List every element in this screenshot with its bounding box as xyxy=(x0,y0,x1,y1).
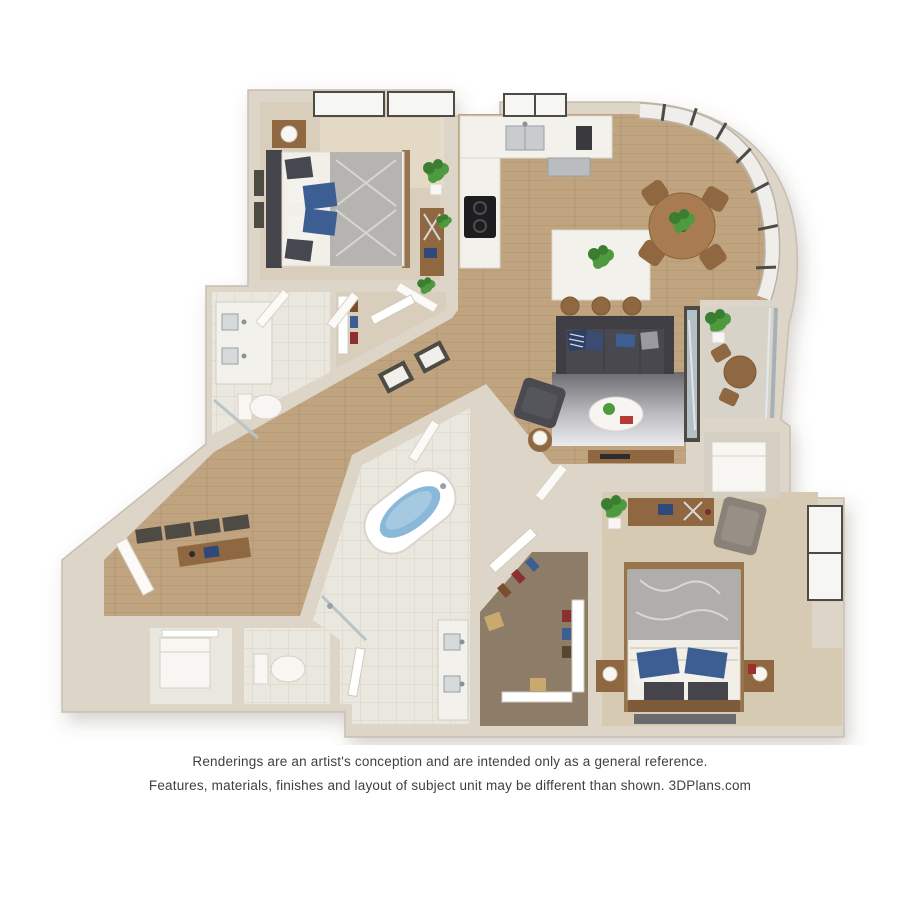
bedroom1-window-2 xyxy=(388,92,454,116)
shower-head xyxy=(327,603,333,609)
toilet-bowl xyxy=(271,656,305,682)
tablet xyxy=(424,248,437,258)
pillow-blue xyxy=(303,208,338,236)
wire-shelving xyxy=(502,692,572,702)
washer-dryer xyxy=(160,638,210,688)
bar-stool xyxy=(623,297,641,315)
clothes xyxy=(562,610,571,622)
runner-rug xyxy=(634,714,736,724)
bedroom2-window xyxy=(808,506,842,600)
lamp xyxy=(281,126,297,142)
duvet xyxy=(628,570,740,640)
planter-pot xyxy=(712,332,725,343)
kitchen-island xyxy=(552,230,650,315)
dishwasher xyxy=(548,158,590,176)
pillow-blue xyxy=(684,647,727,678)
sink xyxy=(222,314,238,330)
toilet-tank xyxy=(254,654,268,684)
disclaimer-line-1: Renderings are an artist's conception an… xyxy=(0,754,900,769)
wire-shelving xyxy=(572,600,584,692)
floor-plan-page: Renderings are an artist's conception an… xyxy=(0,0,900,900)
powder-room xyxy=(254,654,305,684)
bistro-table xyxy=(724,356,756,388)
planter-pot xyxy=(430,184,442,195)
pillow-gray xyxy=(640,331,659,350)
balcony-glass-door xyxy=(684,306,700,442)
faucet xyxy=(523,122,528,127)
bedroom2-desk xyxy=(628,498,714,526)
clothes xyxy=(350,316,358,328)
storage-closet xyxy=(712,442,766,492)
clothes xyxy=(562,628,571,640)
clothes xyxy=(562,646,571,658)
sink xyxy=(222,348,238,364)
ottoman xyxy=(530,678,546,691)
headboard xyxy=(266,150,282,268)
sink xyxy=(444,634,460,650)
disclaimer-line-2: Features, materials, finishes and layout… xyxy=(0,778,900,793)
sofa xyxy=(556,316,674,374)
wall-art-frame-icon xyxy=(254,170,264,196)
wall-jog xyxy=(812,602,842,648)
duvet xyxy=(330,152,402,266)
laundry-closet xyxy=(160,630,218,688)
clothes xyxy=(350,332,358,344)
sink xyxy=(444,676,460,692)
pillow-blue xyxy=(636,647,679,678)
pillow-dark xyxy=(688,682,728,700)
wall-art-frame-icon xyxy=(254,202,264,228)
toilet xyxy=(238,394,282,420)
book-red xyxy=(748,664,756,674)
book-red xyxy=(620,416,633,424)
headboard xyxy=(628,700,740,712)
shelf xyxy=(162,630,218,637)
laptop xyxy=(203,545,219,558)
bed-queen-2 xyxy=(624,562,744,712)
bar-stool xyxy=(592,297,610,315)
bedroom1-window xyxy=(314,92,384,116)
master-vanity xyxy=(438,620,468,720)
coffee-maker xyxy=(576,126,592,150)
pillow-blue xyxy=(616,333,636,347)
pillow-blue xyxy=(303,182,338,210)
bed-queen xyxy=(266,150,410,268)
lamp xyxy=(603,667,617,681)
planter-pot xyxy=(608,518,621,529)
laptop xyxy=(658,504,673,515)
bar-stool xyxy=(561,297,579,315)
table-lamp xyxy=(533,431,547,445)
pillow-dark xyxy=(644,682,684,700)
utility-unit xyxy=(712,442,766,492)
soundbar xyxy=(600,454,630,459)
pillow-patterned xyxy=(585,331,604,351)
floor-plan-rendering xyxy=(0,0,900,745)
